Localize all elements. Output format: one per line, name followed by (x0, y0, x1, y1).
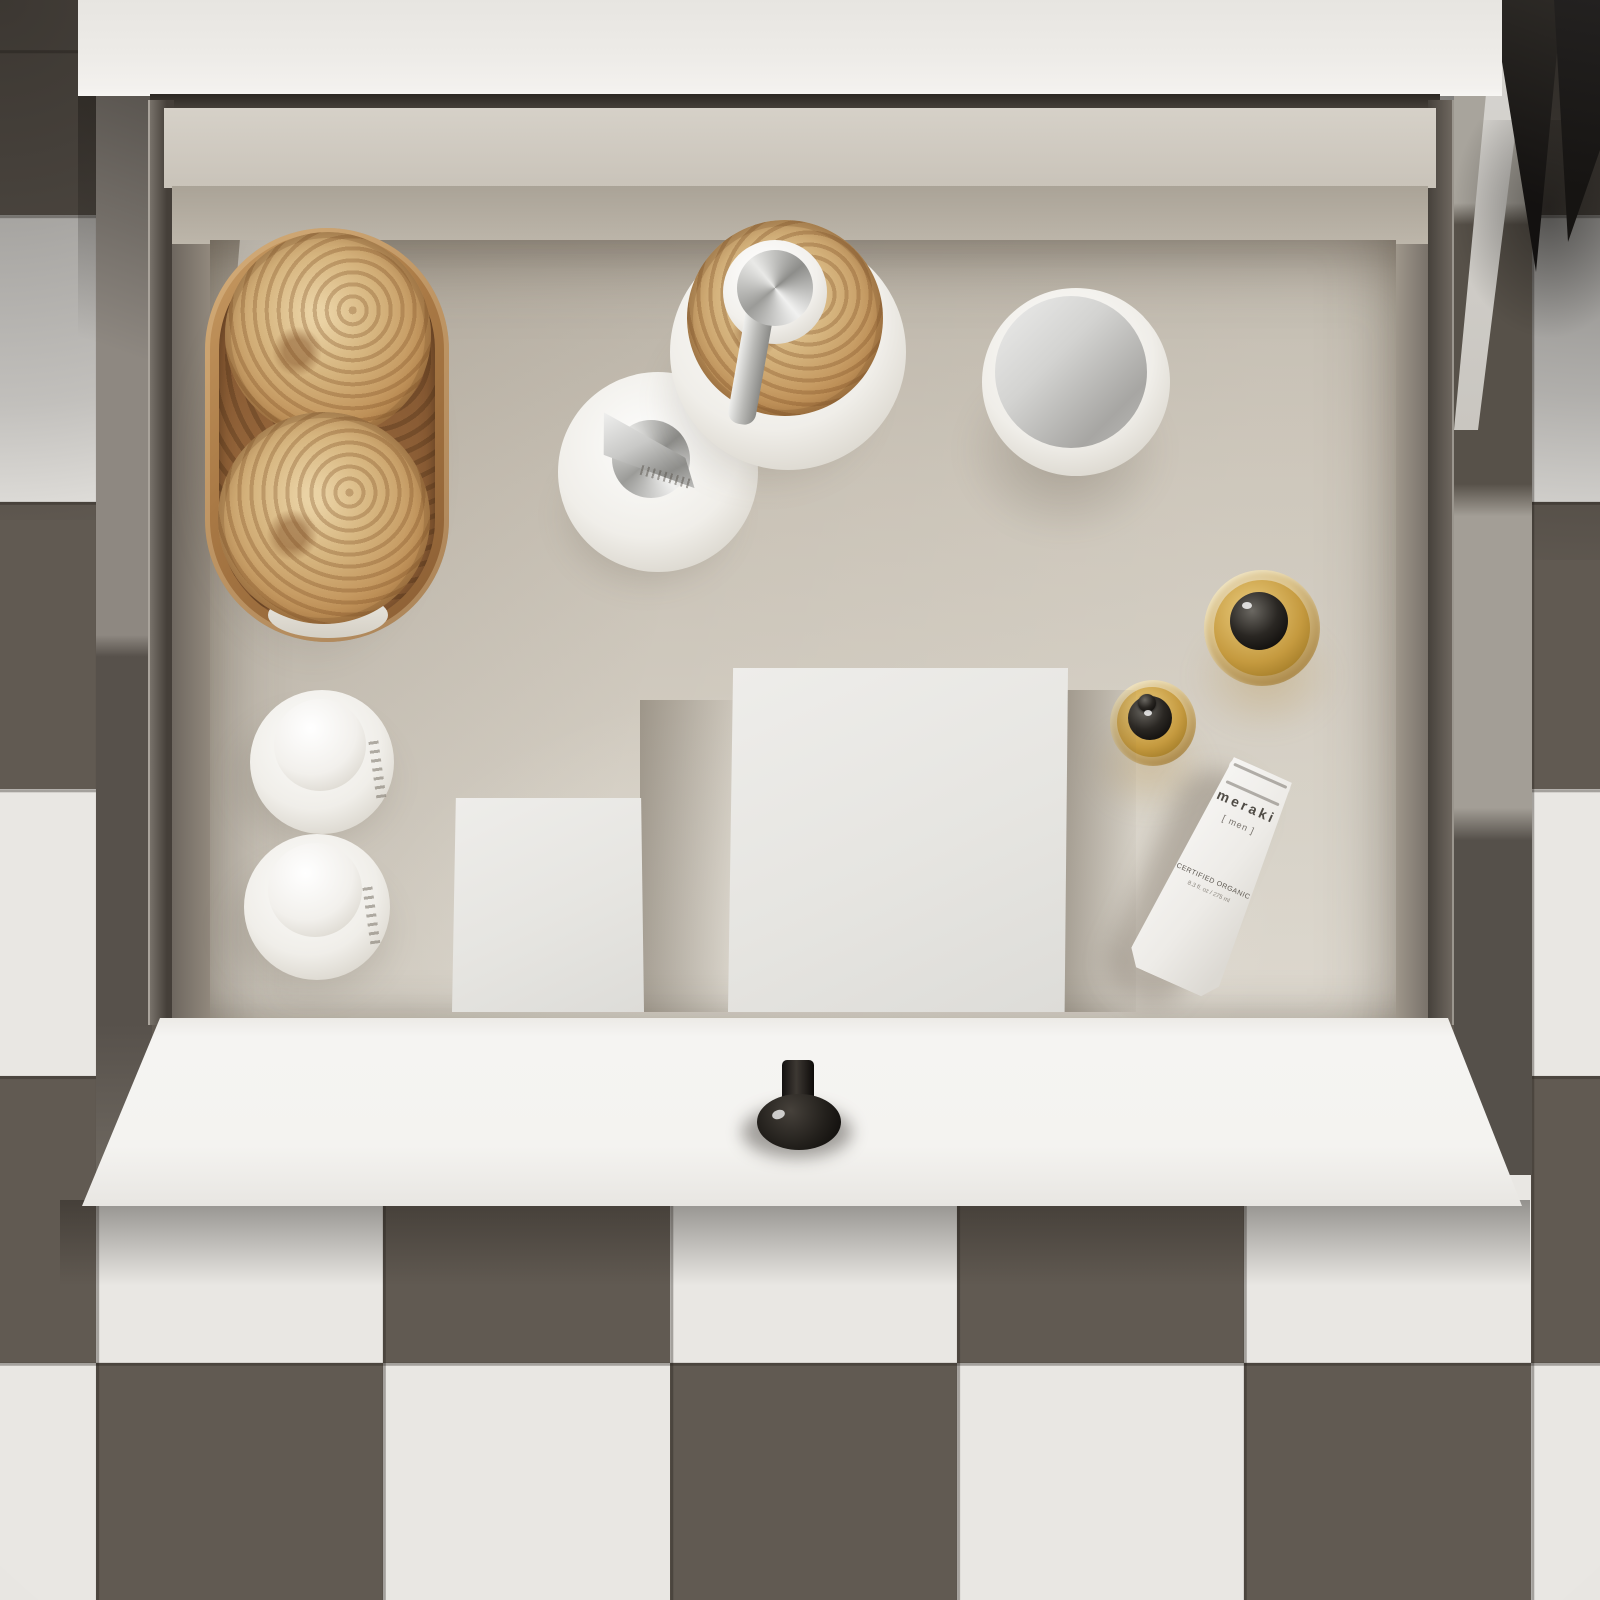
burl-wood-jar-lid (218, 412, 430, 624)
box-cast-shadow (640, 700, 735, 1012)
pump-bottle-dome-cap (268, 843, 362, 937)
vanity-countertop (78, 0, 1502, 96)
cream-jar-chrome-lid (995, 296, 1147, 448)
burl-wood-jar-lid (225, 232, 431, 438)
drawer-back-panel-edge (164, 108, 1436, 188)
drawer-wall-outer-left (148, 100, 174, 1025)
cap-highlight (1144, 710, 1152, 716)
drawer-front-cast-shadow (60, 1200, 1530, 1286)
bathroom-drawer-scene: meraki [ men ] CERTIFIED ORGANIC 8.3 fl.… (0, 0, 1600, 1600)
white-product-box-large (728, 668, 1068, 1012)
cap-highlight (1242, 602, 1252, 609)
pump-bottle-dome-cap (274, 699, 366, 791)
white-product-box-small (452, 798, 644, 1012)
drawer-knob[interactable] (757, 1094, 841, 1150)
chrome-pump-head (737, 250, 813, 326)
drawer-wall-outer-right (1428, 100, 1454, 1025)
dropper-cap (1230, 592, 1288, 650)
